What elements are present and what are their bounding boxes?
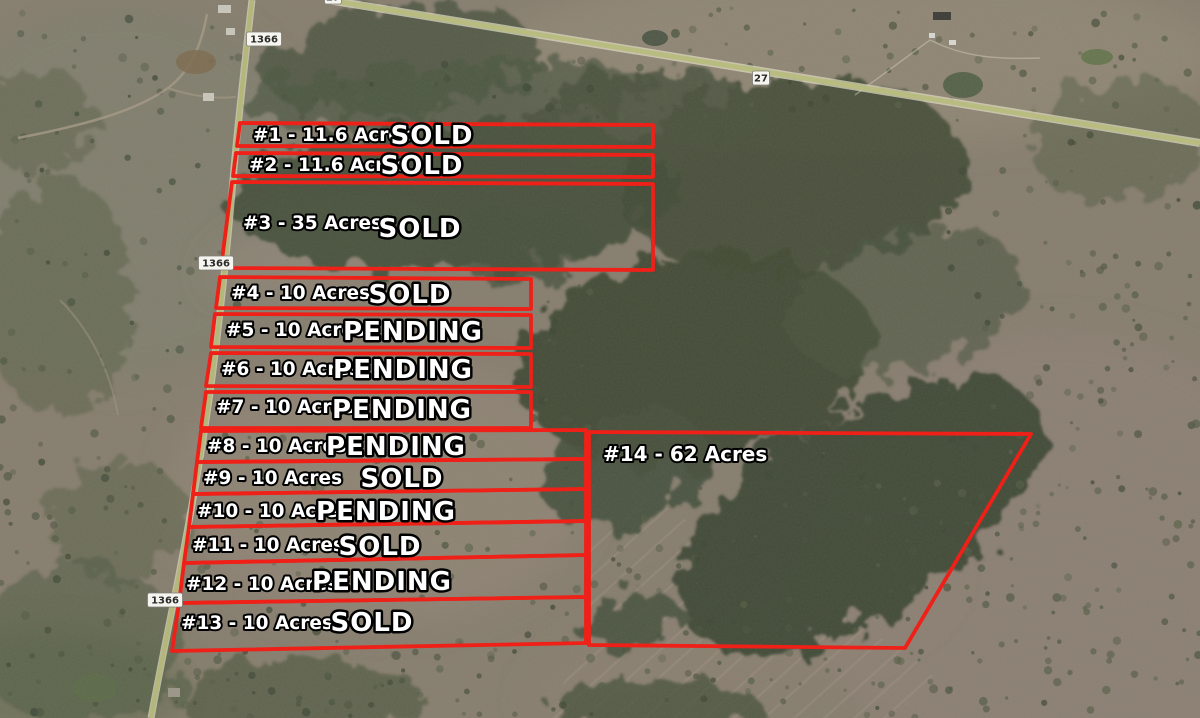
- road-badge-1366-bottom-text: 1366: [151, 596, 179, 607]
- lot-2-status: SOLD: [381, 151, 464, 181]
- road-badge-1366-top: 1366: [247, 32, 282, 46]
- lot-6-status: PENDING: [333, 355, 473, 385]
- map-canvas[interactable]: #1 - 11.6 AcresSOLD#2 - 11.6 AcresSOLD#3…: [0, 0, 1200, 718]
- road-badge-27-top-text: 27: [326, 0, 340, 4]
- lot-4-status: SOLD: [369, 280, 452, 310]
- lot-5-status: PENDING: [343, 317, 483, 347]
- lot-11-status: SOLD: [339, 532, 422, 562]
- lot-13-status: SOLD: [331, 608, 414, 638]
- satellite-map[interactable]: #1 - 11.6 AcresSOLD#2 - 11.6 AcresSOLD#3…: [0, 0, 1200, 718]
- lot-11-label: #11 - 10 Acres: [192, 535, 344, 556]
- lot-7-status: PENDING: [332, 395, 472, 425]
- lot-13-label: #13 - 10 Acres: [181, 613, 333, 634]
- lot-12-status: PENDING: [312, 567, 452, 597]
- road-badge-1366-middle-text: 1366: [202, 259, 230, 270]
- road-badge-1366-top-text: 1366: [250, 35, 278, 46]
- lot-1-label: #1 - 11.6 Acres: [253, 125, 412, 146]
- road-badge-1366-middle: 1366: [199, 256, 234, 270]
- road-badge-27: 27: [753, 71, 770, 85]
- lot-4-label: #4 - 10 Acres: [231, 283, 370, 304]
- lot-10-status: PENDING: [316, 497, 456, 527]
- lot-8-status: PENDING: [326, 432, 466, 462]
- lot-9-status: SOLD: [361, 464, 444, 494]
- lot-9-label: #9 - 10 Acres: [203, 468, 342, 489]
- lot-1-status: SOLD: [391, 121, 474, 151]
- road-badge-27-top: 27: [325, 0, 342, 4]
- lot-3-label: #3 - 35 Acres: [243, 213, 382, 234]
- lot-3-status: SOLD: [379, 214, 462, 244]
- lot-14-label: #14 - 62 Acres: [603, 442, 767, 466]
- road-badge-27-text: 27: [754, 74, 768, 85]
- road-badge-1366-bottom: 1366: [148, 593, 183, 607]
